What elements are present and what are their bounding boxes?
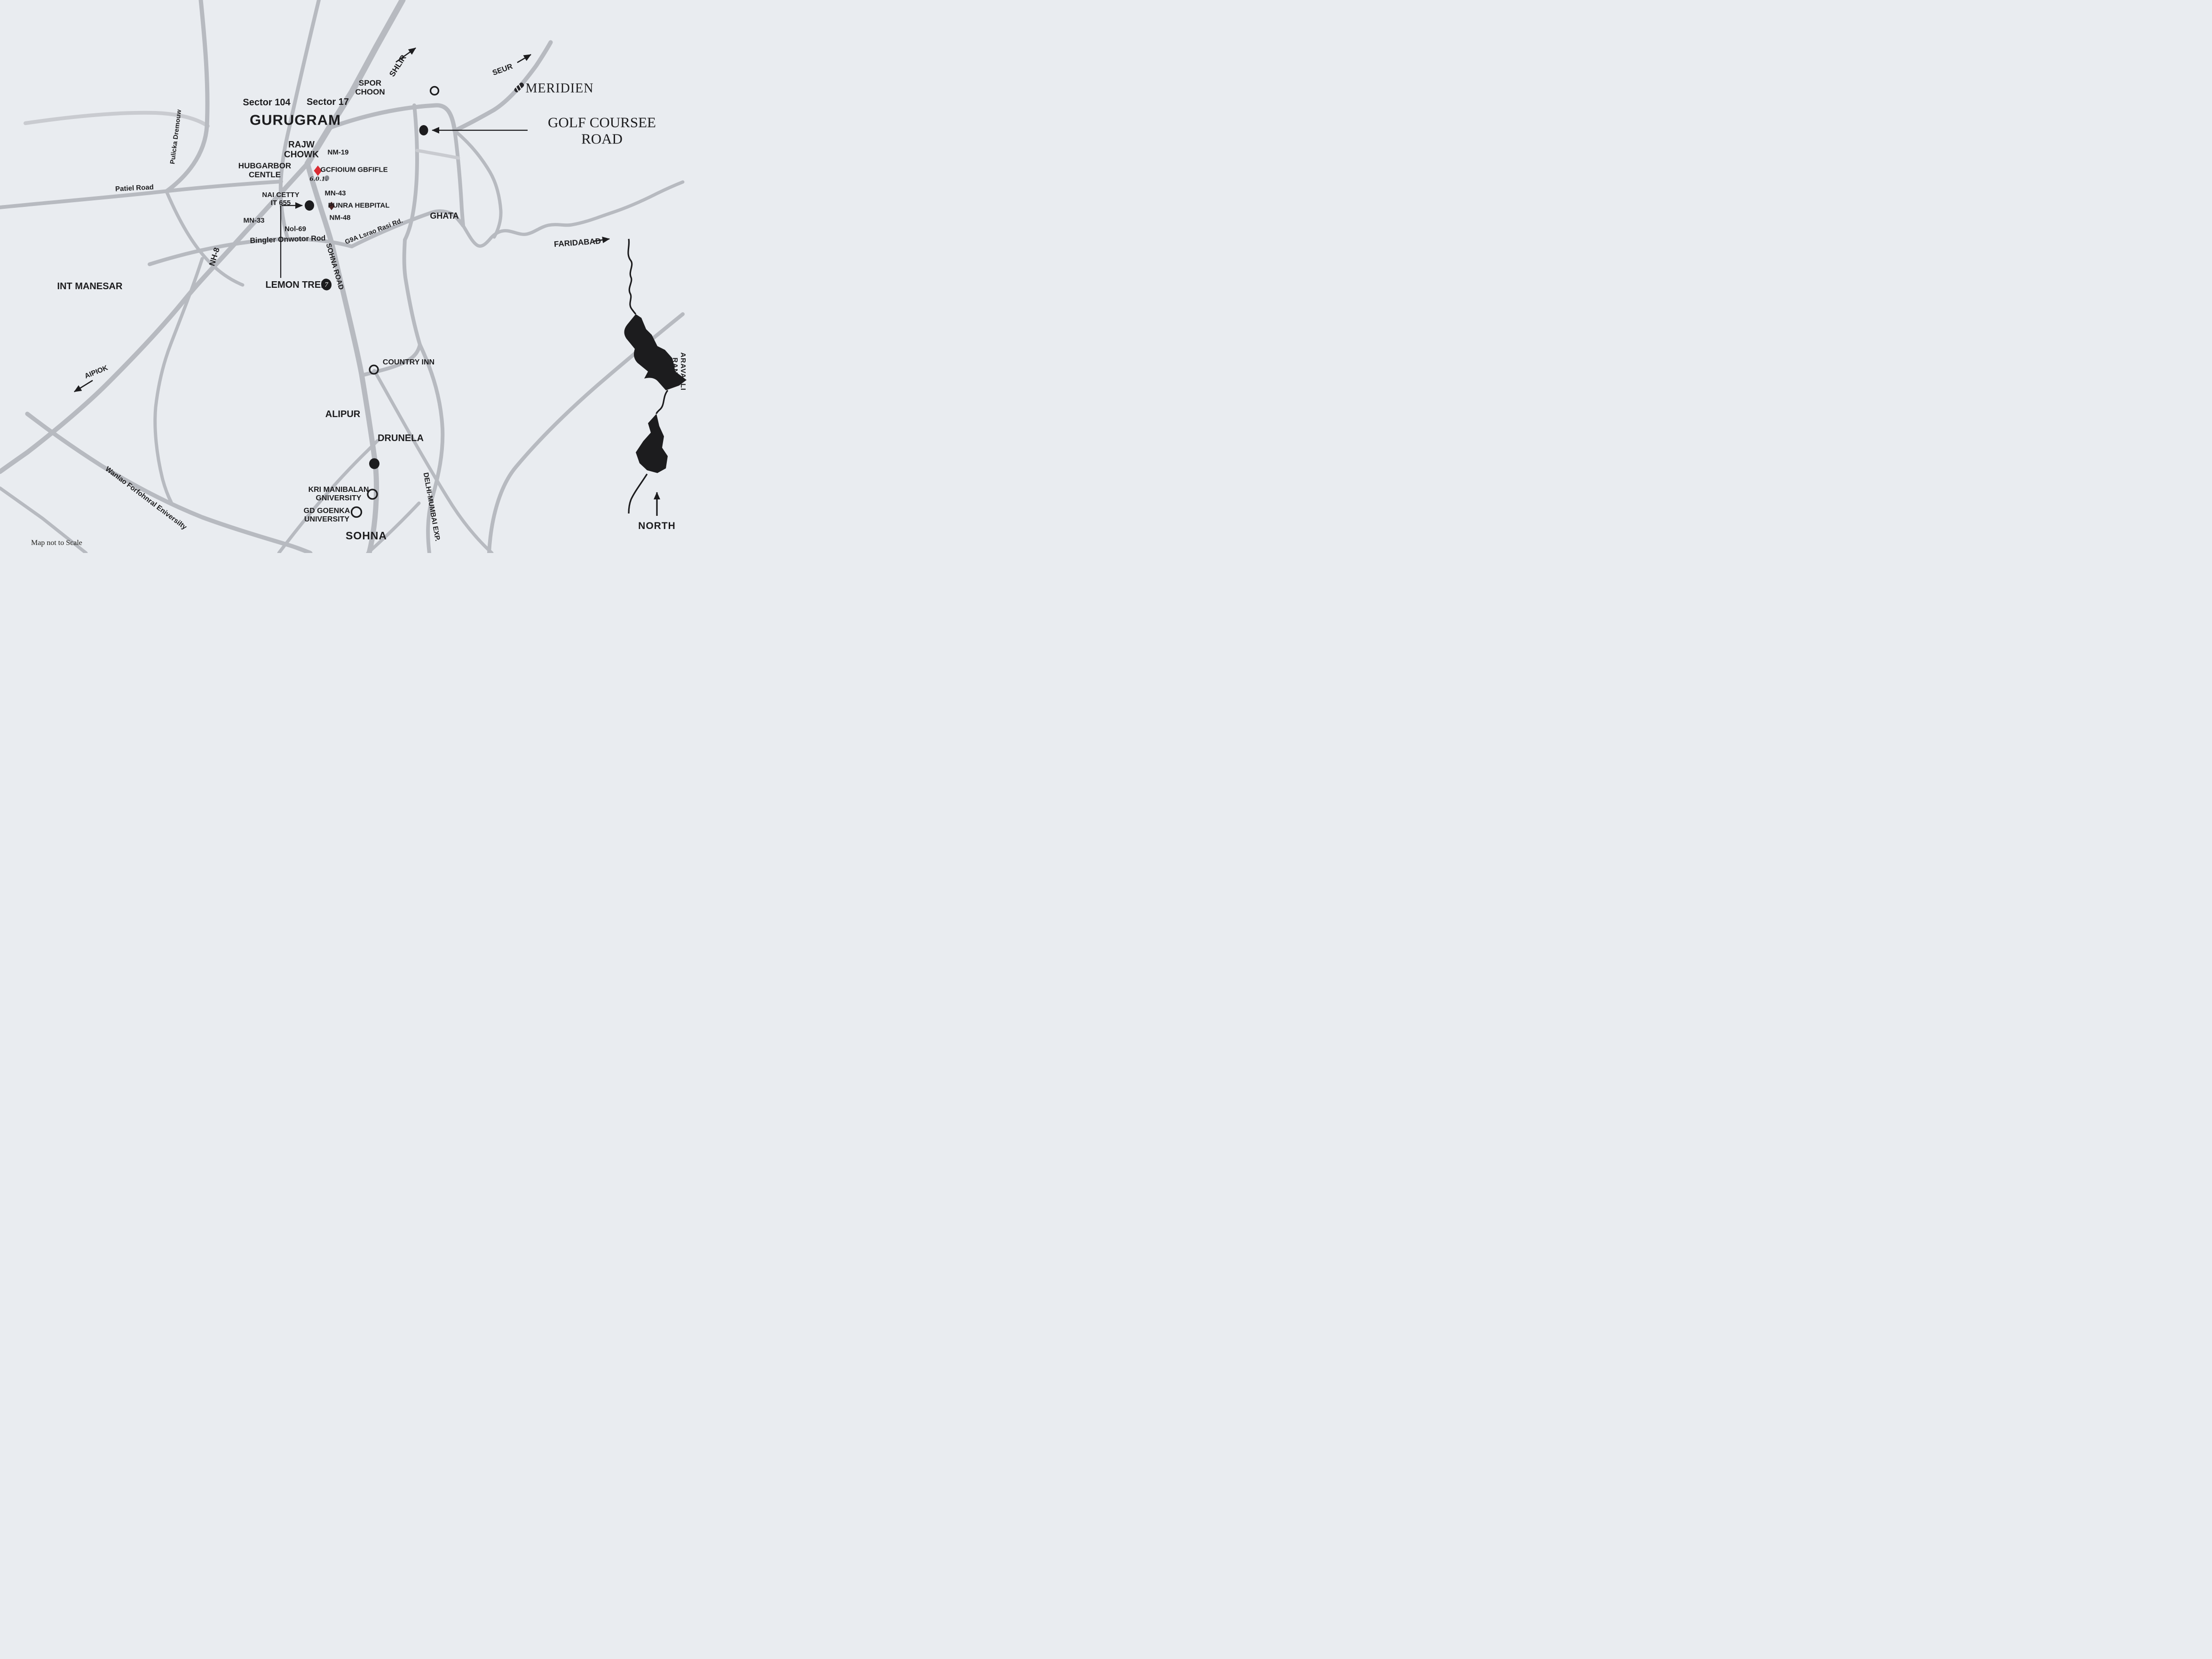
label-sohna: SOHNA [346, 530, 387, 542]
label-golf-course-road: GOLF COURSEE ROAD [534, 114, 670, 147]
label-mn-33: MN-33 [243, 217, 264, 225]
label-hubgarbor-centre: HUBGARBOR CENTLE [238, 161, 291, 179]
map-scale-note: Map not to Scale [31, 539, 82, 547]
label-nai-city: NAI CETTY IT 655 [262, 191, 299, 207]
label-dwarka-expressway: Pulicka Dremouw [169, 109, 183, 165]
label-ghata: GHATA [430, 211, 458, 221]
label-patel-road: Patiel Road [115, 183, 154, 193]
label-gurugram: GURUGRAM [250, 112, 341, 129]
label-faridabad: FARIDABAD [553, 237, 601, 249]
labels-layer: Sector 104Sector 17GURUGRAMSPOR CHOONSHL… [0, 0, 737, 553]
label-paras-hospital: PUNRA HEBPITAL [328, 202, 390, 210]
label-bingler-road: Bingler Onwotor Rod [250, 234, 325, 245]
label-sector-17: Sector 17 [307, 97, 349, 107]
label-shlir: SHLIR [387, 53, 408, 78]
label-gol-script: 6.0.1. [309, 176, 327, 182]
map-canvas: 7 Sector 104Sector 17GURUGRAMSPOR CHOONS… [0, 0, 737, 553]
label-seur: SEUR [491, 63, 514, 78]
label-kr-mangalam-university: KRI MANIBALAN GNIVERSITY [308, 486, 369, 503]
label-north: NORTH [638, 521, 676, 532]
label-aravalli-range: ARAVALLI RANGE [671, 342, 687, 401]
label-airport: AIPIOK [84, 364, 109, 381]
label-nh-8: NH-8 [207, 246, 221, 267]
label-nol-69: Nol-69 [284, 226, 306, 234]
label-meridien: MERIDIEN [526, 81, 594, 95]
label-int-manesar: INT MANESAR [57, 281, 123, 292]
label-project-marker-label: GCFIOIUM GBFIFLE [320, 166, 387, 174]
label-nm-19: NM-19 [327, 149, 348, 157]
label-lemon-tree: LEMON TREE [265, 280, 327, 290]
label-alipur: ALIPUR [325, 409, 360, 419]
label-wpe-road: Wanlao Forfohnral Eniversilty [103, 466, 188, 532]
label-gd-goenka-university: GD GOENKA UNIVERSITY [304, 507, 350, 524]
label-nm-48: NM-48 [329, 214, 350, 222]
label-rajw-chowk: RAJW CHOWK [284, 140, 319, 160]
label-spor-choon: SPOR CHOON [355, 79, 385, 96]
label-sector-104: Sector 104 [243, 97, 290, 108]
label-g9a-road: G9A Lsrao Rasi Rd. [344, 217, 403, 245]
label-country-inn: COUNTRY INN [383, 358, 434, 367]
label-mn-43: MN-43 [324, 190, 346, 198]
label-delhi-mumbai-exp: DELHI-MUMBAI EXP. [421, 472, 441, 542]
label-drunela: DRUNELA [378, 433, 424, 443]
